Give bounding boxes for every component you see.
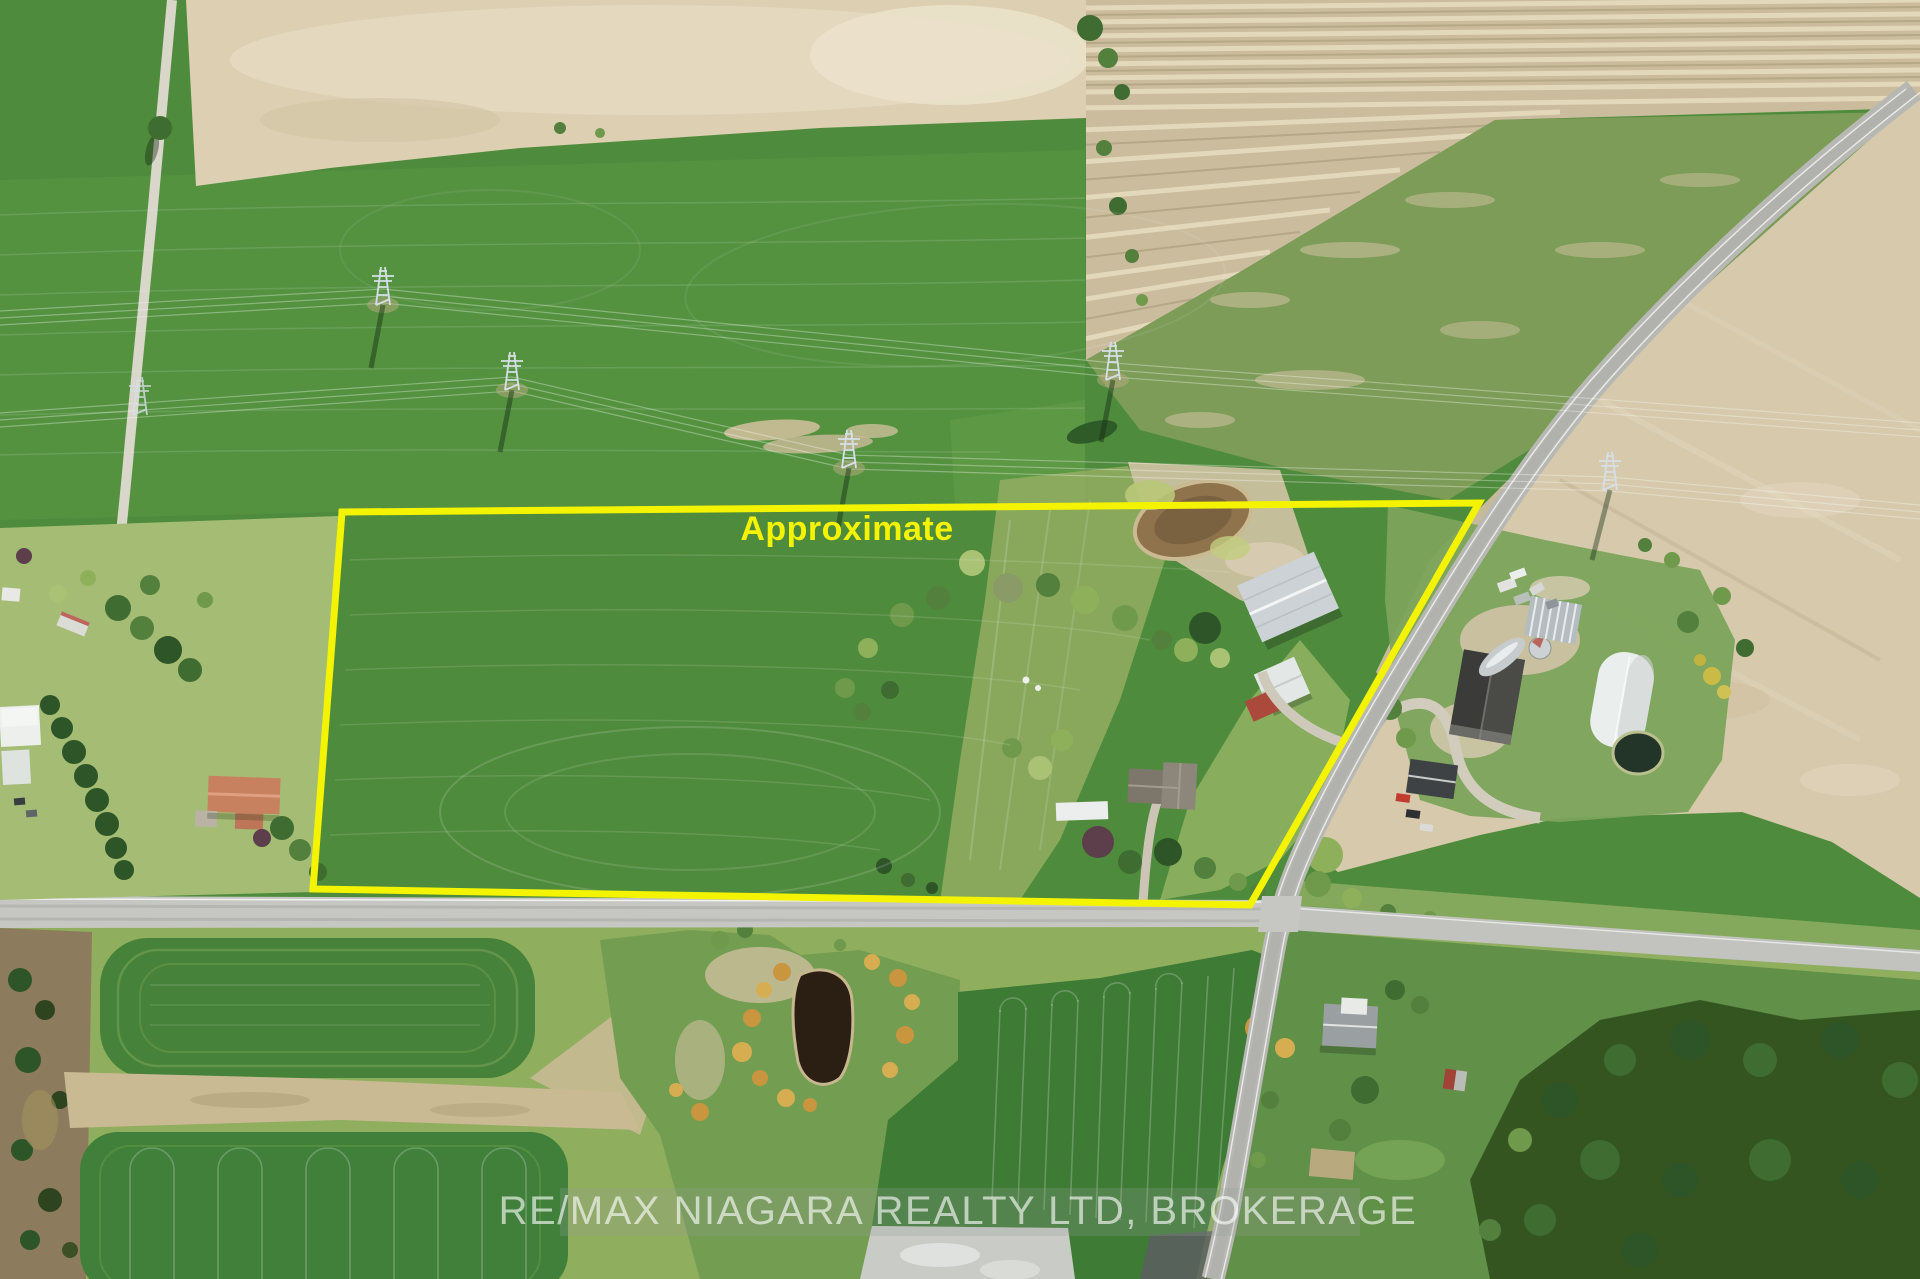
purple-tree — [1082, 826, 1114, 858]
parked-car-2 — [26, 809, 38, 817]
white-trailer — [1056, 801, 1109, 821]
red-shed-south — [1443, 1069, 1468, 1092]
parked-car — [14, 797, 26, 805]
brokerage-watermark: RE/MAX NIAGARA REALTY LTD, BROKERAGE — [499, 1189, 1418, 1233]
dark-pond — [793, 970, 853, 1084]
dirt-scar-3 — [846, 424, 898, 438]
racetrack-field-2 — [80, 1132, 568, 1279]
west-lawn-parcels — [0, 516, 338, 900]
small-shed — [1, 587, 20, 602]
east-pond — [1613, 732, 1663, 774]
racetrack-field-1 — [100, 938, 535, 1078]
aerial-photo: Approximate RE/MAX NIAGARA REALTY LTD, B… — [0, 0, 1920, 1279]
east-house — [1406, 759, 1458, 799]
intersection — [1258, 896, 1302, 932]
approximate-label: Approximate — [740, 510, 953, 548]
